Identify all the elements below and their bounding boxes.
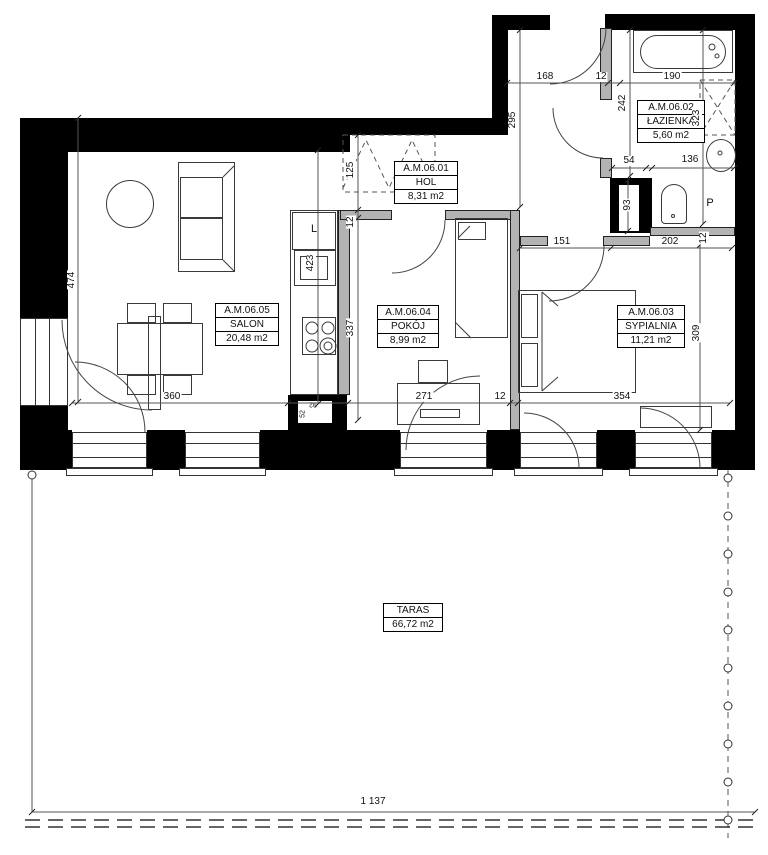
balcony-door-salon xyxy=(72,432,147,468)
dim-92: 92 xyxy=(308,401,318,408)
window-frame-line xyxy=(186,457,259,458)
dim-337: 337 xyxy=(346,319,356,338)
room-area: 8,99 m2 xyxy=(378,333,438,347)
room-name: SYPIALNIA xyxy=(618,319,684,333)
stove xyxy=(302,317,336,355)
window-sill xyxy=(66,468,153,476)
room-id: A.M.06.01 xyxy=(395,162,457,175)
sofa-cushion xyxy=(180,218,223,260)
dim-309: 309 xyxy=(692,324,702,343)
partition-bathroom-west-upper xyxy=(600,28,612,100)
dim-125: 125 xyxy=(346,161,356,180)
washbasin xyxy=(706,139,736,172)
room-label-hol: A.M.06.01 HOL 8,31 m2 xyxy=(394,161,458,204)
partition-bathroom-west-lower xyxy=(600,158,612,178)
dining-chair xyxy=(163,303,192,323)
terrace-edge-dashes xyxy=(25,820,760,827)
room-id: A.M.06.04 xyxy=(378,306,438,319)
room-area: 66,72 m2 xyxy=(384,617,442,631)
dim-423: 423 xyxy=(306,254,316,273)
room-name: TARAS xyxy=(384,604,442,617)
bathtub-inner xyxy=(640,35,726,69)
wall-top-hol xyxy=(350,118,495,135)
toilet xyxy=(661,184,687,224)
dim-93: 93 xyxy=(623,198,633,211)
bed-pillow xyxy=(521,343,538,387)
dim-54: 54 xyxy=(622,156,635,166)
desk-chair xyxy=(418,360,448,383)
room-area: 5,60 m2 xyxy=(638,128,704,142)
dining-table xyxy=(117,323,203,375)
dim-12-wc: 12 xyxy=(699,231,709,244)
wall-entrance-left xyxy=(492,15,508,135)
balcony-door-left-wall xyxy=(20,318,68,406)
room-name: HOL xyxy=(395,175,457,189)
dim-271: 271 xyxy=(415,392,434,402)
wall-entrance-top xyxy=(492,15,550,30)
window-sill xyxy=(394,468,493,476)
dim-12-top: 12 xyxy=(594,72,607,82)
partition-sypialnia-north-right xyxy=(603,236,650,246)
room-label-taras: TARAS 66,72 m2 xyxy=(383,603,443,632)
window-sill xyxy=(629,468,718,476)
window-frame-line xyxy=(401,443,486,444)
dim-168: 168 xyxy=(536,72,555,82)
room-area: 20,48 m2 xyxy=(216,331,278,345)
balcony-door-sypialnia-1 xyxy=(520,432,597,468)
dim-12-mid: 12 xyxy=(493,392,506,402)
dim-242: 242 xyxy=(618,94,628,113)
window-sill xyxy=(179,468,266,476)
window-frame-line xyxy=(521,457,596,458)
dim-202: 202 xyxy=(661,237,680,247)
floor-plan: A.M.06.01 HOL 8,31 m2 A.M.06.02 ŁAZIENKA… xyxy=(0,0,768,855)
partition-wc-south xyxy=(650,227,735,236)
round-table xyxy=(106,180,154,228)
dim-136: 136 xyxy=(681,155,700,165)
window-frame-line xyxy=(73,457,146,458)
wall-bottom-3 xyxy=(260,430,290,470)
wall-left-upper xyxy=(20,118,68,320)
balcony-door-sypialnia-2 xyxy=(635,432,712,468)
dim-151: 151 xyxy=(553,237,572,247)
dim-12-kitchen: 12 xyxy=(346,215,356,228)
wall-bathroom-top xyxy=(605,14,755,30)
dim-total: 1 137 xyxy=(359,797,386,807)
shaft-label: P xyxy=(706,197,713,209)
wall-bottom-5 xyxy=(487,430,520,470)
room-area: 11,21 m2 xyxy=(618,333,684,347)
room-label-sypialnia: A.M.06.03 SYPIALNIA 11,21 m2 xyxy=(617,305,685,348)
window-frame-line xyxy=(35,319,36,405)
room-id: A.M.06.05 xyxy=(216,304,278,317)
sofa-cushion xyxy=(180,177,223,218)
wall-top-salon xyxy=(20,118,350,152)
window-frame-line xyxy=(49,319,50,405)
window-frame-line xyxy=(73,443,146,444)
wall-bottom-2 xyxy=(147,430,185,470)
window-frame-line xyxy=(521,443,596,444)
window-frame-line xyxy=(636,443,711,444)
bed-pillow xyxy=(458,222,486,240)
balcony-door-pokoj xyxy=(400,432,487,468)
bed-pillow xyxy=(521,294,538,338)
room-id: A.M.06.03 xyxy=(618,306,684,319)
dim-190: 190 xyxy=(663,72,682,82)
room-area: 8,31 m2 xyxy=(395,189,457,203)
partition-kitchen xyxy=(338,210,350,395)
dim-323: 323 xyxy=(692,109,702,128)
window-frame-line xyxy=(186,443,259,444)
dining-chair xyxy=(127,375,156,395)
dining-chair xyxy=(127,303,156,323)
window-sill xyxy=(514,468,603,476)
fridge-label: L xyxy=(311,223,317,235)
dim-474: 474 xyxy=(67,271,77,290)
dim-295: 295 xyxy=(508,111,518,130)
room-label-salon: A.M.06.05 SALON 20,48 m2 xyxy=(215,303,279,346)
desk-drawer xyxy=(420,409,460,418)
wall-bottom-1 xyxy=(20,430,72,470)
terrace-rail-posts xyxy=(28,471,732,824)
dresser xyxy=(640,406,712,428)
wall-bottom-7 xyxy=(712,430,755,470)
room-label-pokoj: A.M.06.04 POKÓJ 8,99 m2 xyxy=(377,305,439,348)
window-salon xyxy=(185,432,260,468)
dim-354: 354 xyxy=(613,392,632,402)
desk xyxy=(397,383,480,425)
dim-52: 52 xyxy=(300,409,307,419)
wall-bottom-6 xyxy=(597,430,635,470)
window-frame-line xyxy=(401,457,486,458)
room-name: POKÓJ xyxy=(378,319,438,333)
wall-right xyxy=(735,14,755,470)
dim-360: 360 xyxy=(163,392,182,402)
window-frame-line xyxy=(636,457,711,458)
wall-bottom-4 xyxy=(345,430,400,470)
partition-sypialnia-north-left xyxy=(520,236,548,246)
room-name: SALON xyxy=(216,317,278,331)
